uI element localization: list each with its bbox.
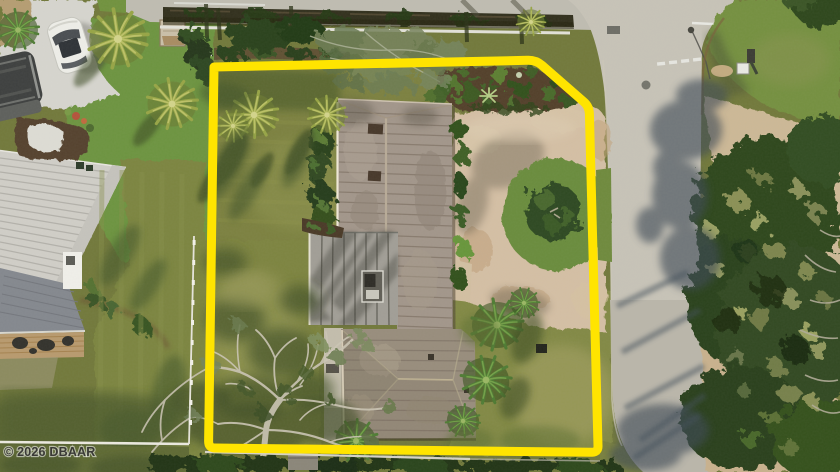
svg-text:© 2026 DBAAR: © 2026 DBAAR [4, 445, 96, 459]
